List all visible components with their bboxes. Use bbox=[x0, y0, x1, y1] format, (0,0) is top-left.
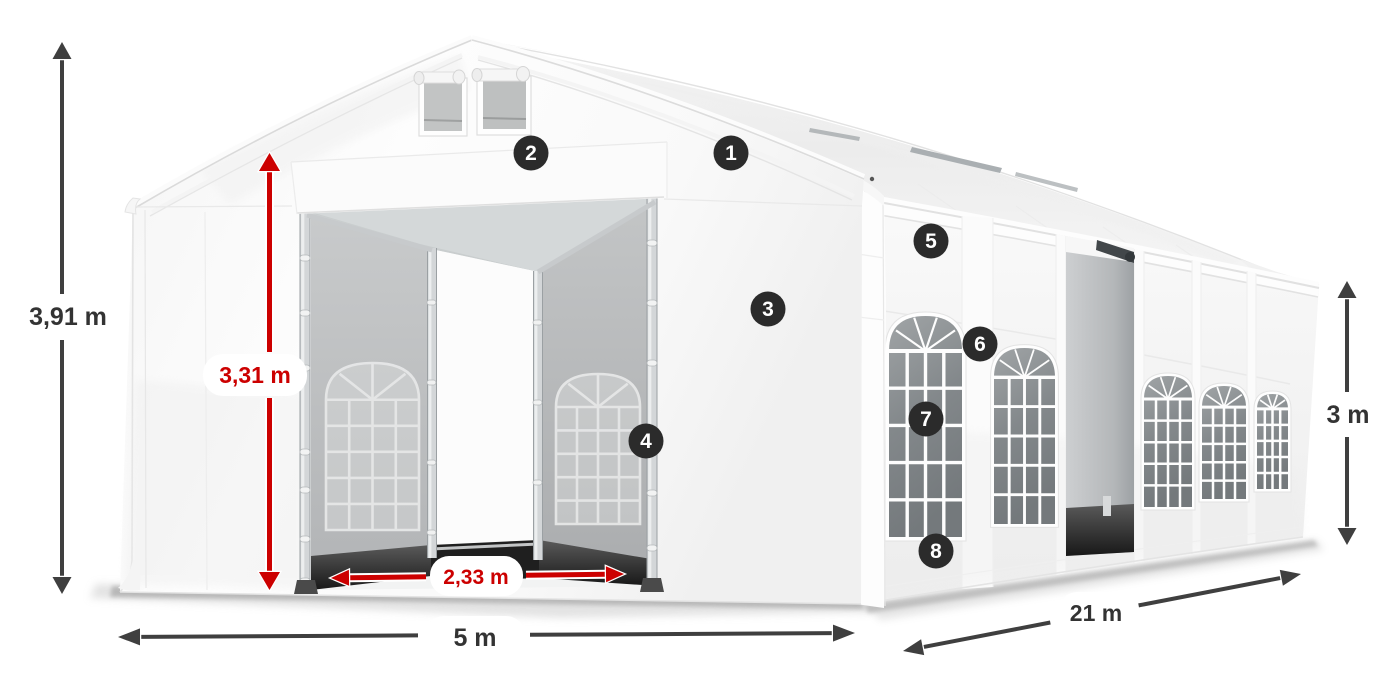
svg-text:3 m: 3 m bbox=[1326, 401, 1369, 429]
svg-text:21 m: 21 m bbox=[1070, 600, 1122, 626]
svg-text:1: 1 bbox=[725, 142, 737, 165]
svg-text:4: 4 bbox=[640, 430, 652, 453]
svg-text:6: 6 bbox=[974, 333, 986, 356]
svg-text:3,91 m: 3,91 m bbox=[29, 303, 107, 331]
svg-text:8: 8 bbox=[930, 540, 942, 563]
svg-text:2,33 m: 2,33 m bbox=[443, 566, 508, 589]
svg-text:5 m: 5 m bbox=[453, 624, 496, 652]
svg-text:5: 5 bbox=[925, 230, 937, 253]
svg-text:3: 3 bbox=[762, 298, 774, 321]
svg-text:3,31 m: 3,31 m bbox=[219, 362, 291, 388]
svg-text:7: 7 bbox=[920, 408, 932, 431]
svg-text:2: 2 bbox=[525, 142, 537, 165]
